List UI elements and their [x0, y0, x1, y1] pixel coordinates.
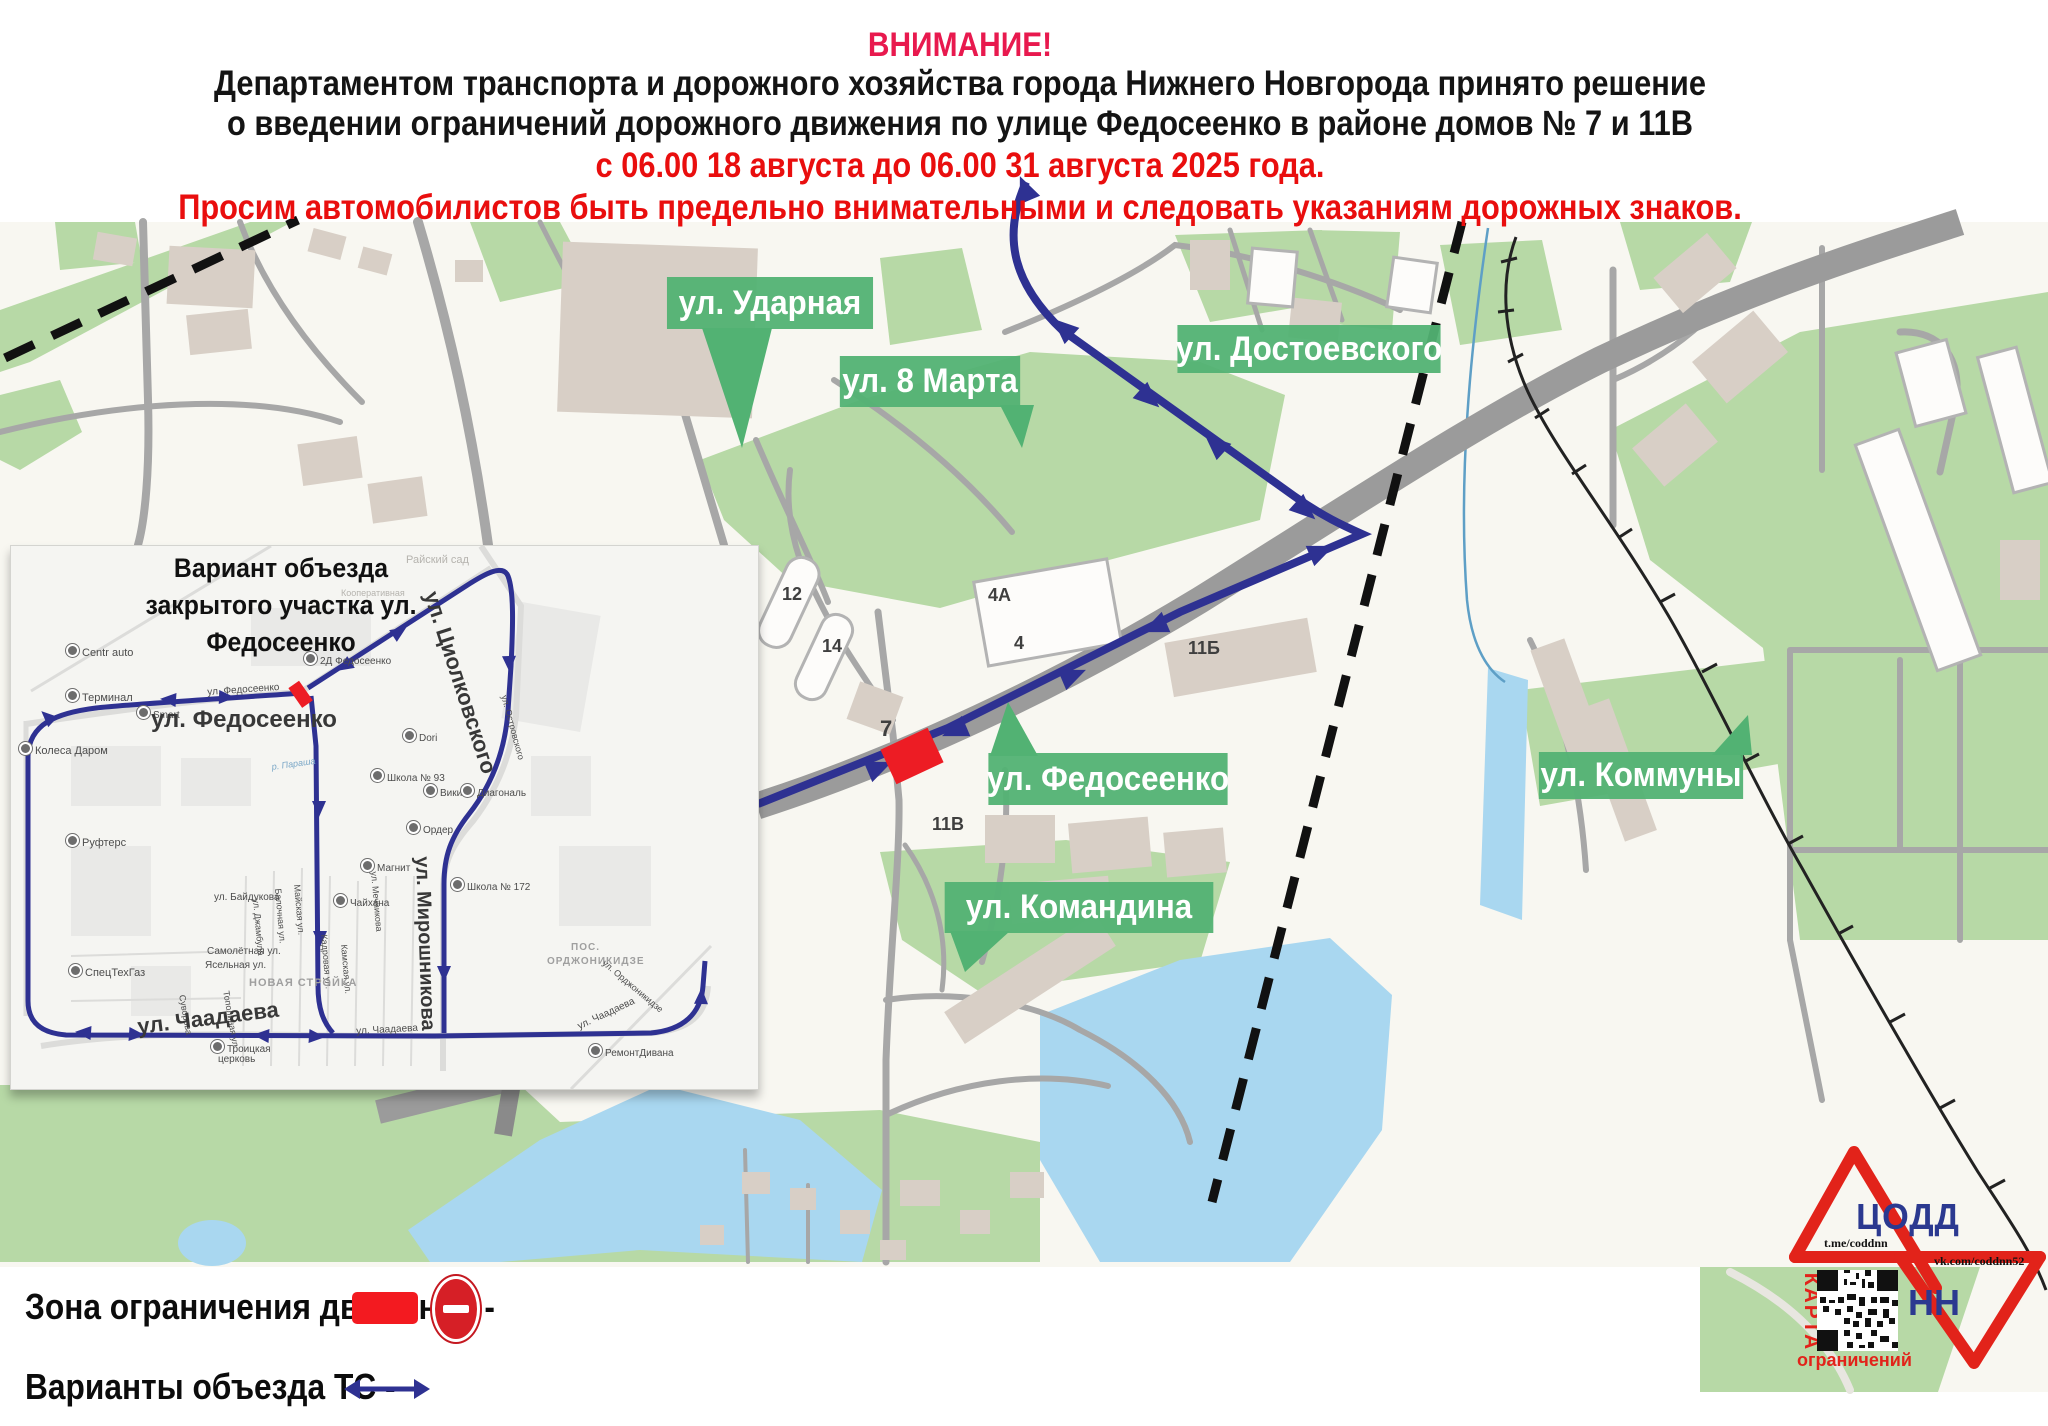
inset-map-label: Centr auto	[66, 644, 133, 659]
inset-map-label: 2Д Федосеенко	[304, 652, 391, 667]
inset-map-label: Dori	[403, 729, 437, 744]
road-closure-poster: ВНИМАНИЕ! Департаментом транспорта и дор…	[0, 0, 2048, 1426]
codd-logo: ЦОДД t.me/coddnn vk.com/coddnn52 НН КАРТ…	[1788, 1128, 2048, 1426]
inset-title: Вариант объезда закрытого участка ул. Фе…	[83, 550, 479, 661]
vk-link-text: vk.com/coddnn52	[1934, 1254, 2024, 1269]
inset-map-label: Самолётная ул.	[207, 946, 281, 957]
street-label: ул. Достоевского	[1177, 325, 1440, 373]
qr-code	[1817, 1270, 1898, 1351]
inset-map-label: Руфтерс	[66, 834, 126, 849]
header-line-1: Департаментом транспорта и дорожного хоз…	[172, 64, 1749, 104]
inset-map-label: ул. Федосеенко	[151, 706, 337, 734]
inset-map-label: Троицкая	[211, 1040, 271, 1055]
house-number-label: 12	[782, 584, 802, 605]
street-label: ул. Коммуны	[1539, 752, 1743, 799]
codd-logo-nn-text: НН	[1908, 1282, 1960, 1324]
qr-caption-bottom: ограничений	[1797, 1350, 1912, 1371]
street-label: ул. 8 Марта	[840, 356, 1020, 407]
inset-map-label: церковь	[218, 1054, 255, 1065]
header-line-2: о введении ограничений дорожного движени…	[172, 104, 1749, 144]
house-number-label: 11Б	[1188, 638, 1220, 659]
street-label: ул. Ударная	[667, 277, 873, 329]
telegram-link-text: t.me/coddnn	[1824, 1236, 1888, 1251]
inset-map-label: Магнит	[361, 859, 410, 874]
house-number-label: 4А	[988, 585, 1011, 606]
inset-map-label: Терминал	[66, 689, 133, 704]
detour-inset-map: Вариант объезда закрытого участка ул. Фе…	[10, 545, 759, 1090]
inset-map-label: РемонтДивана	[589, 1044, 674, 1059]
header-dates: с 06.00 18 августа до 06.00 31 августа 2…	[172, 146, 1749, 186]
inset-map-label: ОРДЖОНИКИДЗЕ	[547, 956, 645, 967]
inset-map-label: Колеса Даром	[19, 742, 108, 757]
house-number-label: 14	[822, 636, 842, 657]
legend-restriction-label: Зона ограничения движения -	[25, 1286, 495, 1328]
house-number-label: 7	[880, 716, 892, 742]
inset-map-label: ул. Байдукова	[214, 892, 280, 903]
codd-logo-text: ЦОДД	[1849, 1196, 1967, 1238]
attention-title: ВНИМАНИЕ!	[172, 26, 1749, 65]
street-label: ул. Федосеенко	[988, 753, 1227, 805]
inset-map-label: Диагональ	[461, 784, 526, 799]
detour-double-arrow-icon	[344, 1374, 430, 1404]
legend-detour-label: Варианты объезда ТС -	[25, 1366, 396, 1408]
inset-map-label: Школа № 172	[451, 878, 530, 893]
inset-map-label: Ясельная ул.	[205, 960, 266, 971]
house-number-label: 11В	[932, 814, 964, 835]
house-number-label: 4	[1014, 633, 1024, 654]
header-warning: Просим автомобилистов быть предельно вни…	[172, 188, 1749, 228]
inset-map-label: Школа № 93	[371, 769, 445, 784]
inset-map-label: ПОС.	[571, 942, 600, 953]
inset-map-label: Райский сад	[406, 554, 469, 566]
restriction-zone-swatch	[352, 1292, 418, 1324]
inset-map-label: СпецТехГаз	[69, 964, 145, 979]
inset-map-label: Чайхана	[334, 894, 389, 909]
no-entry-sign-icon	[432, 1276, 480, 1342]
inset-map-label: НОВАЯ СТРОЙКА	[249, 977, 358, 989]
street-label: ул. Командина	[945, 882, 1214, 933]
inset-map-label: Кооперативная	[341, 588, 405, 598]
inset-map-label: Ордер	[407, 821, 453, 836]
